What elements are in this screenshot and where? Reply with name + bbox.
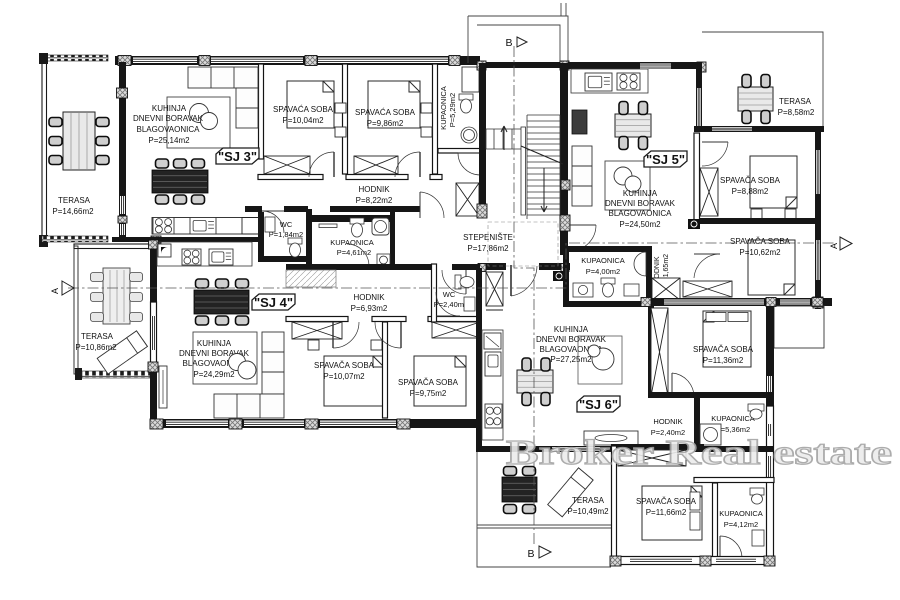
svg-text:A: A — [829, 243, 839, 249]
svg-text:KUPAONICA: KUPAONICA — [719, 509, 763, 518]
svg-text:P=10,86m2: P=10,86m2 — [75, 343, 117, 352]
svg-text:HODNIK: HODNIK — [653, 417, 682, 426]
svg-text:WC: WC — [443, 290, 456, 299]
svg-text:SPAVAČA SOBA: SPAVAČA SOBA — [730, 237, 791, 246]
svg-text:SPAVAČA SOBA: SPAVAČA SOBA — [636, 497, 697, 506]
svg-text:SPAVAĆA SOBA: SPAVAĆA SOBA — [355, 108, 416, 117]
svg-text:P=27,25m2: P=27,25m2 — [550, 355, 592, 364]
svg-text:TERASA: TERASA — [779, 97, 812, 106]
svg-text:Broker Real estate: Broker Real estate — [506, 433, 892, 472]
svg-text:P=10,49m2: P=10,49m2 — [567, 507, 609, 516]
svg-text:B: B — [505, 37, 512, 49]
svg-text:BLAGOVAONICA: BLAGOVAONICA — [609, 209, 673, 218]
svg-text:"SJ 6": "SJ 6" — [579, 397, 618, 412]
svg-text:DNEVNI BORAVAK: DNEVNI BORAVAK — [605, 199, 676, 208]
svg-text:BLAGOVAONICA: BLAGOVAONICA — [137, 125, 201, 134]
svg-text:P=4,61m2: P=4,61m2 — [337, 248, 371, 257]
svg-text:KUHINJA: KUHINJA — [623, 189, 658, 198]
svg-text:KUHINJA: KUHINJA — [152, 104, 187, 113]
svg-text:KUHINJA: KUHINJA — [197, 339, 232, 348]
svg-text:TERASA: TERASA — [81, 332, 114, 341]
svg-text:P=8,88m2: P=8,88m2 — [732, 187, 769, 196]
svg-text:SPAVAČA SOBA: SPAVAČA SOBA — [398, 378, 459, 387]
svg-text:P=14,66m2: P=14,66m2 — [52, 207, 94, 216]
svg-text:SPAVAČA SOBA: SPAVAČA SOBA — [314, 361, 375, 370]
svg-text:A: A — [50, 288, 60, 294]
svg-text:P=10,62m2: P=10,62m2 — [739, 248, 781, 257]
svg-text:HODNIK: HODNIK — [358, 185, 390, 194]
svg-text:SPAVAČA SOBA: SPAVAČA SOBA — [693, 345, 754, 354]
svg-text:HODNIK: HODNIK — [353, 293, 385, 302]
svg-text:P=24,50m2: P=24,50m2 — [619, 220, 661, 229]
svg-text:P=8,58m2: P=8,58m2 — [778, 108, 815, 117]
svg-text:P=11,36m2: P=11,36m2 — [703, 356, 744, 365]
svg-text:"SJ 5": "SJ 5" — [646, 152, 685, 167]
svg-text:P=9,75m2: P=9,75m2 — [410, 389, 447, 398]
svg-text:P=25,14m2: P=25,14m2 — [148, 136, 190, 145]
svg-text:P=10,04m2: P=10,04m2 — [282, 116, 324, 125]
svg-text:"SJ 4": "SJ 4" — [254, 295, 293, 310]
svg-text:P=2,40m2: P=2,40m2 — [434, 300, 468, 309]
svg-text:KUPAONICA: KUPAONICA — [439, 86, 448, 130]
svg-text:SPAVAĆA SOBA: SPAVAĆA SOBA — [273, 105, 334, 114]
svg-text:P=4,00m2: P=4,00m2 — [586, 267, 620, 276]
svg-text:P=9,86m2: P=9,86m2 — [367, 119, 404, 128]
svg-text:P=11,66m2: P=11,66m2 — [646, 508, 687, 517]
svg-text:P=8,22m2: P=8,22m2 — [356, 196, 393, 205]
svg-text:P=24,29m2: P=24,29m2 — [193, 370, 235, 379]
svg-text:P=5,29m2: P=5,29m2 — [448, 93, 457, 127]
svg-text:DNEVNI BORAVAK: DNEVNI BORAVAK — [133, 114, 204, 123]
svg-text:WC: WC — [280, 220, 293, 229]
svg-text:KUPAONICA: KUPAONICA — [711, 414, 755, 423]
svg-text:TERASA: TERASA — [58, 196, 91, 205]
svg-text:SPAVAČA SOBA: SPAVAČA SOBA — [720, 176, 781, 185]
svg-text:KUHINJA: KUHINJA — [554, 325, 589, 334]
svg-text:KUPAONICA: KUPAONICA — [330, 238, 374, 247]
svg-text:B: B — [527, 548, 534, 560]
svg-text:TERASA: TERASA — [572, 496, 605, 505]
svg-text:P=6,93m2: P=6,93m2 — [351, 304, 388, 313]
svg-text:P=10,07m2: P=10,07m2 — [323, 372, 365, 381]
svg-text:"SJ 3": "SJ 3" — [218, 149, 257, 164]
svg-text:P=4,12m2: P=4,12m2 — [724, 520, 758, 529]
svg-text:KUPAONICA: KUPAONICA — [581, 256, 625, 265]
